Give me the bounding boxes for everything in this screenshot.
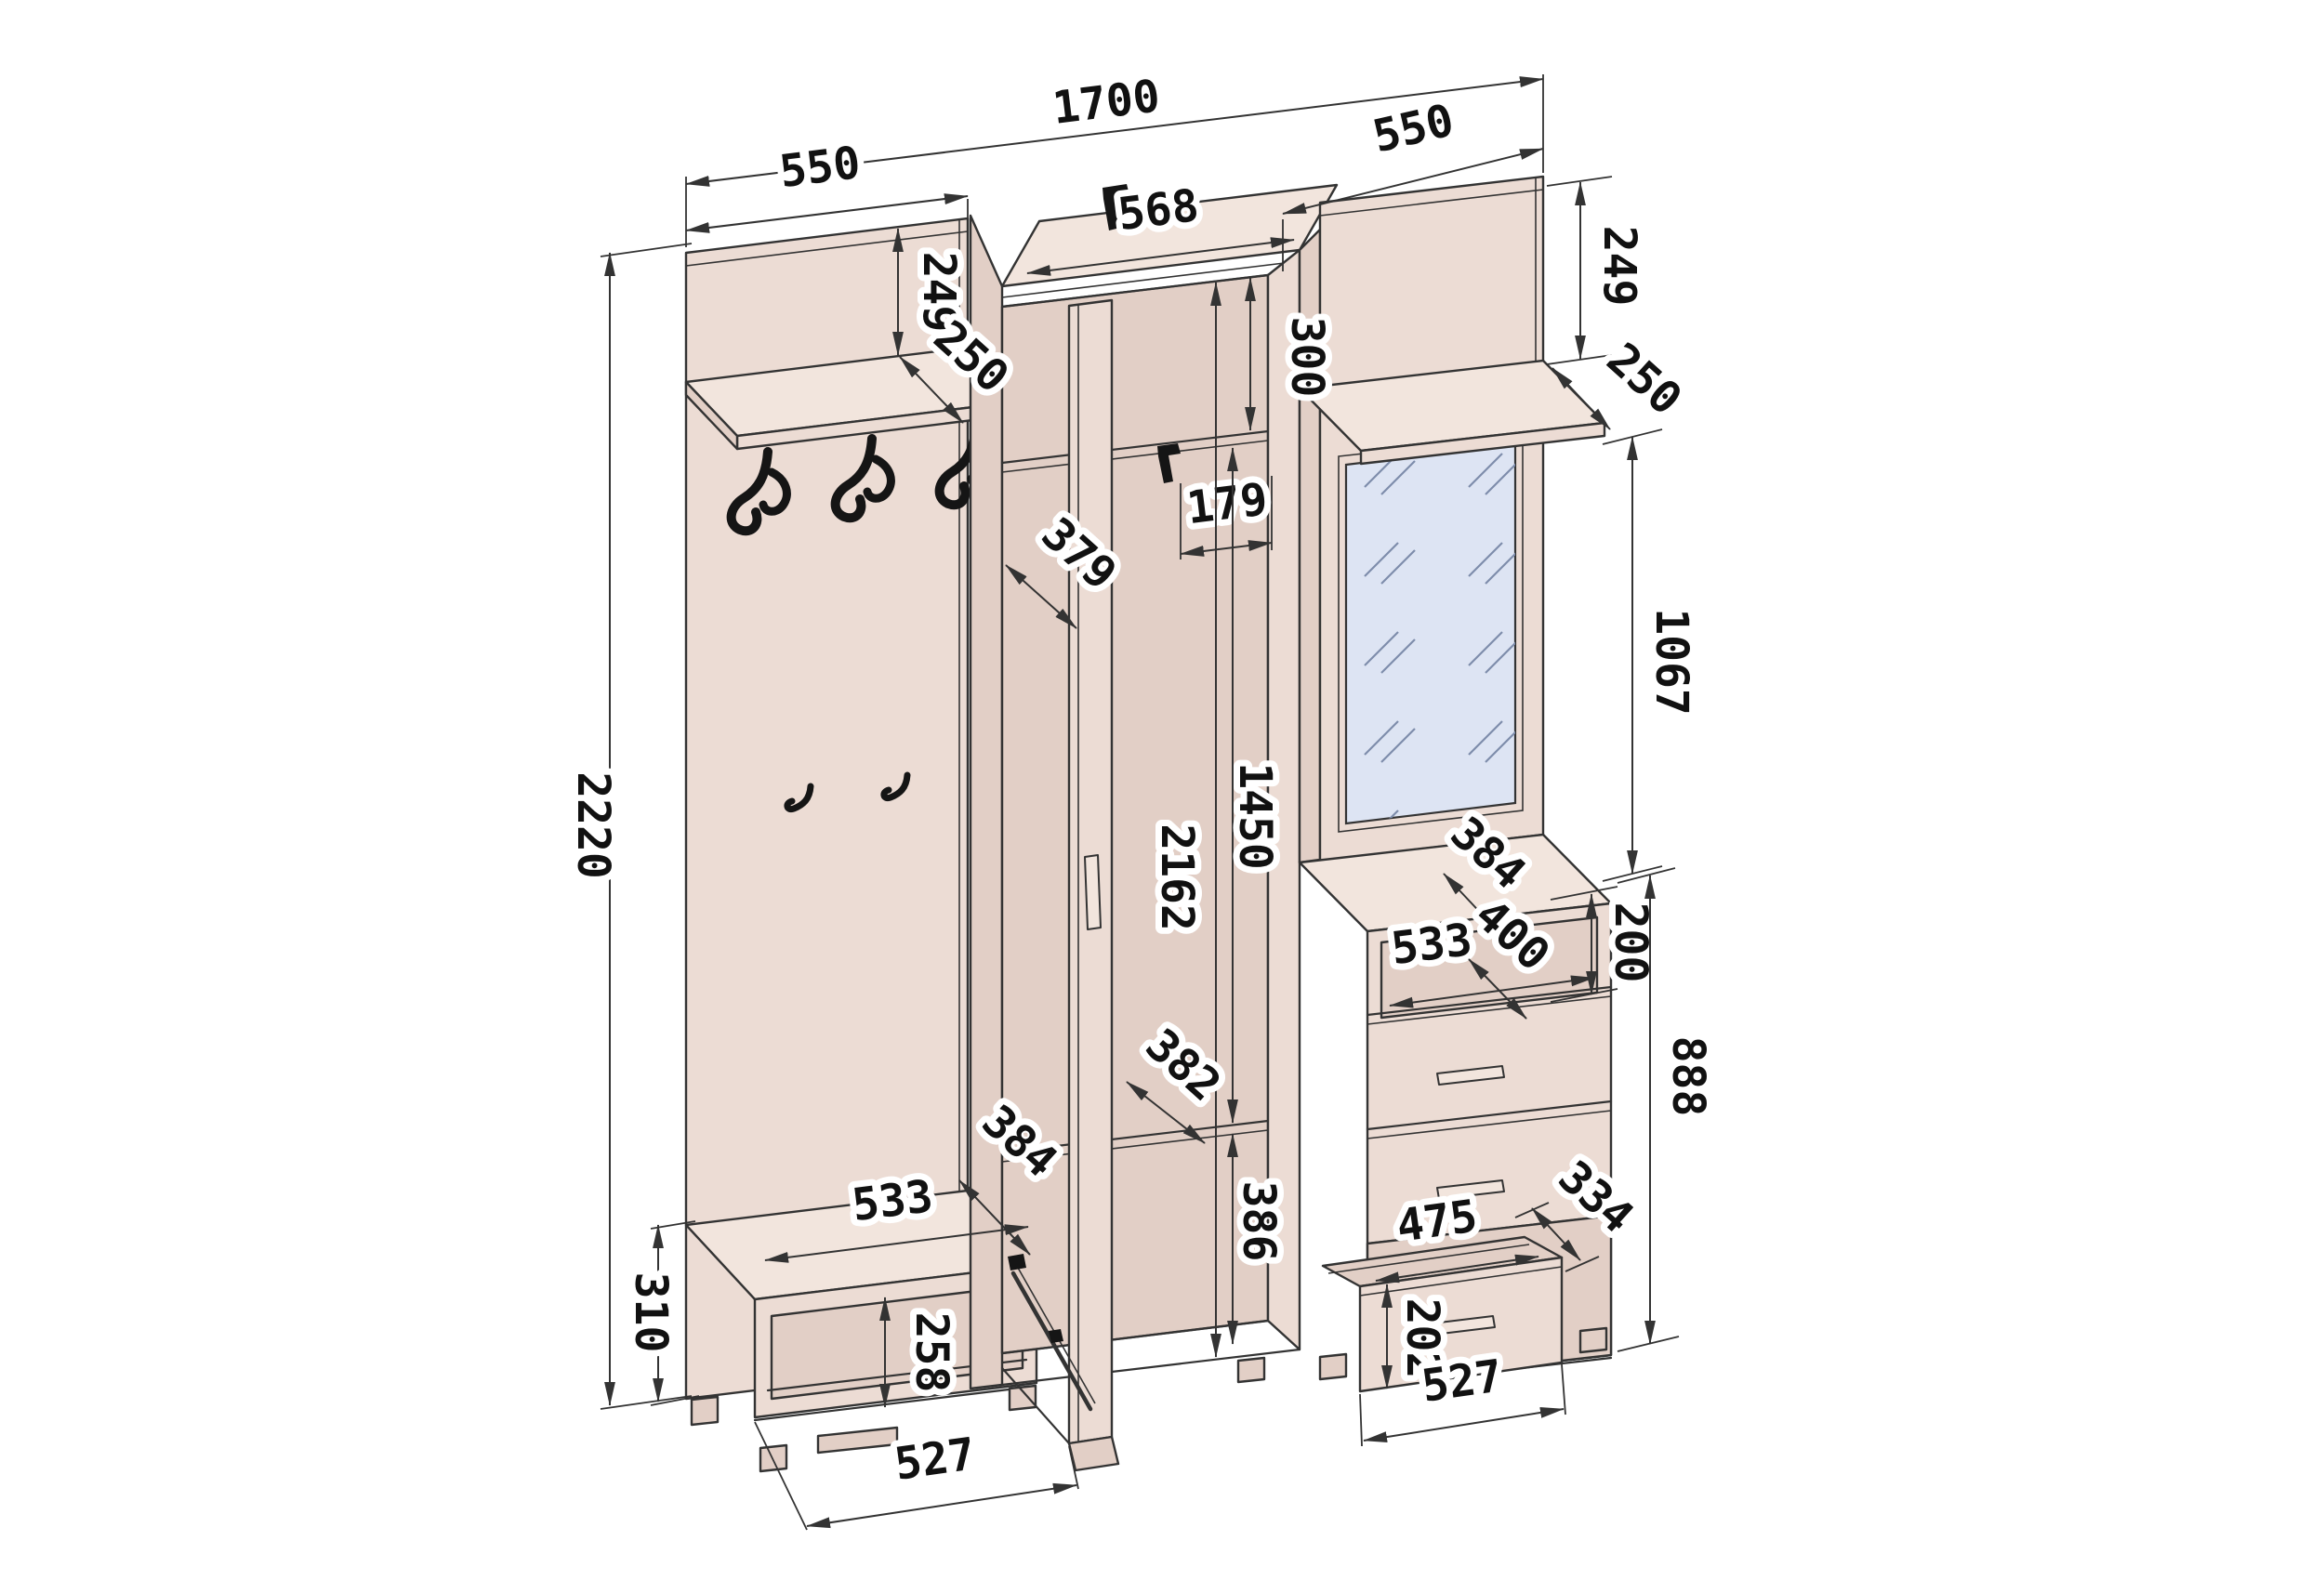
- wardrobe-foot: [1238, 1358, 1264, 1382]
- drawing-canvas: 1700 550 550 568 2220 249 250 300 179: [0, 0, 2324, 1580]
- wardrobe-foot: [1010, 1386, 1036, 1410]
- dim-label-top-shelf-height: 300: [1281, 317, 1333, 398]
- chest-foot: [1580, 1328, 1606, 1352]
- bench-foot: [760, 1445, 786, 1471]
- door-bottom-edge: [1069, 1437, 1118, 1470]
- dim-label-rod-clearance: 179: [1184, 473, 1271, 534]
- door-stay-bracket: [1008, 1254, 1026, 1271]
- dim-label-bench-opening-height: 258: [905, 1312, 957, 1393]
- dim-label-wardrobe-inner-height: 2162: [1151, 823, 1203, 931]
- dim-label-bench-base-width: 527: [891, 1428, 979, 1491]
- chest-foot: [1320, 1354, 1346, 1379]
- mirror-wall-panel: [1320, 177, 1543, 861]
- dim-left-section-width: 550: [686, 137, 968, 230]
- dim-label-overall-width: 1700: [1050, 70, 1163, 135]
- dim-label-mirror-section-height: 1067: [1645, 608, 1697, 716]
- dim-label-drawer-opening-width: 475: [1393, 1190, 1481, 1253]
- mirror-hatching: [1346, 444, 1515, 823]
- dim-label-right-shelf-depth: 250: [1597, 333, 1692, 426]
- dim-label-right-shelf-offset: 249: [1593, 226, 1645, 307]
- dim-label-wardrobe-top-width: 568: [1116, 179, 1202, 241]
- dim-bench-base-width: 527: [755, 1422, 1078, 1530]
- door-handle: [1085, 855, 1101, 929]
- dim-overall-height: 2220: [567, 244, 692, 1409]
- dim-label-door-inner-height: 1450: [1229, 762, 1281, 870]
- dim-label-bench-height: 310: [625, 1272, 677, 1353]
- dim-label-drawer-width: 527: [1419, 1350, 1506, 1413]
- dim-label-right-section-width: 550: [1368, 94, 1459, 163]
- dim-label-left-section-width: 550: [777, 137, 864, 198]
- dim-label-chest-niche-height: 200: [1604, 902, 1657, 983]
- dim-label-bench-top-width: 533: [850, 1170, 936, 1231]
- dim-label-wardrobe-base-height: 386: [1233, 1181, 1285, 1262]
- left-panel-foot: [692, 1397, 718, 1425]
- dim-label-overall-height: 2220: [567, 771, 619, 879]
- dim-label-chest-shelf-width: 533: [1389, 914, 1475, 975]
- technical-drawing: 1700 550 550 568 2220 249 250 300 179: [0, 0, 2324, 1580]
- dim-mirror-section-height: 1067: [1603, 429, 1697, 881]
- dim-label-chest-height: 888: [1662, 1036, 1714, 1117]
- bench-foot-bar: [818, 1428, 897, 1453]
